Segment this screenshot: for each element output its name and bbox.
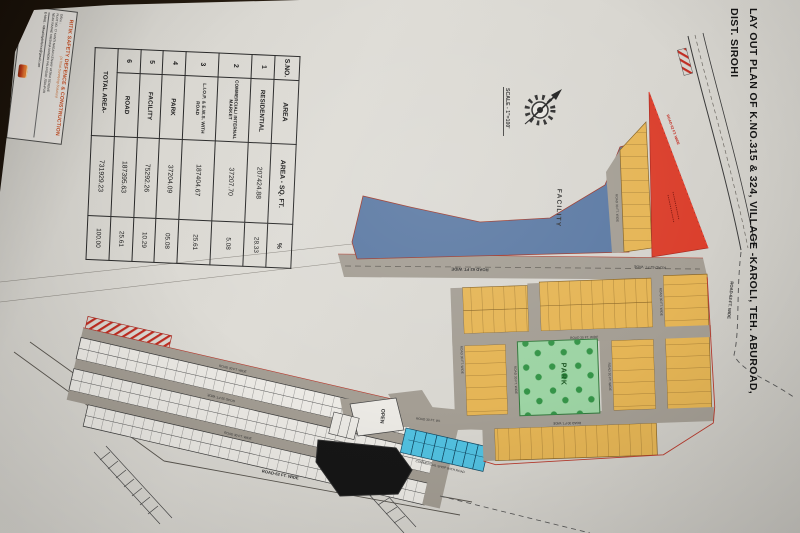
header-pct: % [266, 223, 293, 268]
cell-sno: 4 [163, 51, 187, 76]
cell-sqft: 75292.26 [134, 138, 160, 219]
road-62-main-label: ROAD 62 FT. WIDE [451, 267, 489, 273]
cell-area: L.I.O.P. & E.W.S. WITH ROAD [183, 76, 219, 141]
plot-block-subdivisions [464, 344, 507, 415]
compass-rose-icon [525, 89, 562, 124]
cell-pct: 25.61 [109, 216, 134, 261]
cell-total-area: 731929.23 [88, 136, 114, 217]
facility-zone [352, 145, 629, 259]
paper-sheet: ROAD-60-FT. WIDE ROAD-62 FT. WIDE ROAD 3… [0, 0, 800, 533]
cell-area: COMMERCIAL/ INTERNAL MARKET [215, 77, 251, 142]
cell-sqft: 187404.67 [179, 140, 215, 221]
cell-sno: 1 [251, 54, 275, 79]
hatch-rect [677, 48, 692, 75]
cell-area: PARK [160, 75, 186, 140]
park-trees [517, 339, 600, 416]
cell-total-label: TOTAL AREA- [91, 48, 118, 137]
scale-note: SCALE - 1"=100' [504, 87, 511, 136]
survey-ladder-line-1 [94, 446, 172, 524]
header-area: AREA [271, 79, 299, 144]
cell-sno: 5 [140, 50, 164, 75]
cell-pct: 10.29 [132, 217, 157, 262]
title-line-1: LAY OUT PLAN OF K.NO.315 & 324, VILLAGE … [743, 8, 762, 486]
facility-label: FACILITY [554, 189, 562, 228]
drawing-title: LAY OUT PLAN OF K.NO.315 & 324, VILLAGE … [722, 8, 762, 486]
company-stamp: RITIK SAFETY DEFENCE & CONSTRUCTION (A T… [6, 5, 78, 145]
cell-sno: 2 [218, 53, 252, 78]
open-parcel [350, 398, 404, 436]
park-label: PARK [559, 363, 566, 386]
area-table-wrap: S.NO. AREA AREA - SQ. FT. % 1 RESIDENTIA… [90, 52, 296, 264]
cell-sqft: 37204.09 [156, 139, 182, 220]
cell-pct: 25.61 [177, 219, 212, 264]
residential-grid: PARK ROAD 30 FT. WIDE ROAD 30 FT. WIDE R… [435, 273, 716, 466]
road-30-label: ROAD 30 FT. WIDE [553, 421, 581, 425]
plot-block-subdivisions [663, 274, 712, 420]
cell-pct: 5.08 [210, 221, 245, 266]
cell-sno: 6 [117, 49, 141, 74]
area-statement-table: S.NO. AREA AREA - SQ. FT. % 1 RESIDENTIA… [85, 47, 300, 269]
cell-sqft: 37207.70 [212, 141, 248, 222]
title-line-2: DIST. SIROHI [724, 8, 743, 486]
stamp-wrap: RITIK SAFETY DEFENCE & CONSTRUCTION (A T… [14, 8, 70, 142]
cell-sno: 3 [185, 52, 219, 77]
cell-total-pct: 100.00 [86, 215, 111, 260]
cell-sqft: 207424.88 [245, 142, 271, 223]
cell-area: ROAD [114, 73, 140, 138]
plot-block-subdivisions [611, 339, 655, 410]
grid-road [482, 417, 496, 461]
header-sqft: AREA - SQ. FT. [268, 143, 296, 224]
cell-pct: 05.08 [154, 218, 179, 263]
company-logo [18, 64, 29, 78]
cell-area: FACILITY [137, 74, 163, 139]
red-zone [649, 92, 708, 257]
grid-road [527, 283, 541, 333]
south-dashed-line [440, 496, 590, 533]
scale-label: SCALE - 1"=100' [504, 88, 510, 128]
cell-area: RESIDENTIAL [248, 78, 274, 143]
cell-sqft: 187395.63 [111, 137, 137, 218]
area-table-box: S.NO. AREA AREA - SQ. FT. % 1 RESIDENTIA… [85, 47, 300, 269]
cell-pct: 28.33 [243, 222, 268, 267]
plot-block-subdivisions [539, 278, 653, 331]
plot-block-subdivisions [494, 423, 657, 461]
header-sno: S.NO. [274, 55, 300, 80]
hatched-marker [677, 48, 692, 75]
photo-of-layout-plan: ROAD-60-FT. WIDE ROAD-62 FT. WIDE ROAD 3… [0, 0, 800, 533]
